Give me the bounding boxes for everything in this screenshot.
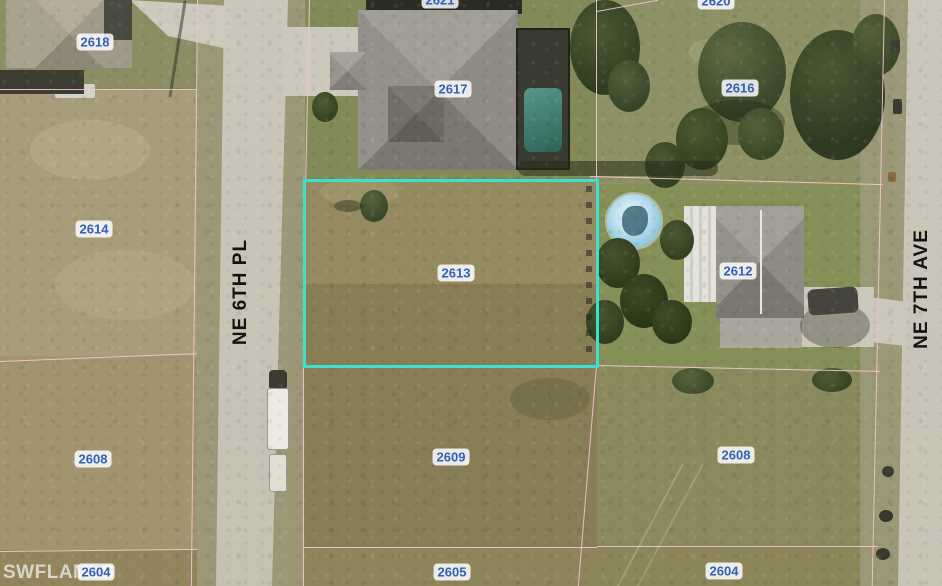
parcel-label-2604-right: 2604 [706, 563, 743, 580]
parcel-label-2604-left: 2604 [78, 564, 115, 581]
sand-patch [55, 250, 195, 320]
parcel-label-2608-right: 2608 [718, 447, 755, 464]
parcel-label-2617: 2617 [435, 81, 472, 98]
house-2618-lanai [0, 70, 84, 94]
roadside-object [888, 172, 896, 182]
parcel-label-2609: 2609 [433, 449, 470, 466]
parcel-label-2621: 2621 [422, 0, 459, 9]
roadside-object [893, 99, 902, 114]
parcel-line [597, 546, 878, 547]
dark-grass-patch [510, 378, 590, 420]
roadside-bush [876, 548, 890, 560]
bush [812, 368, 852, 392]
bush [672, 368, 714, 394]
parcel-line [596, 0, 597, 181]
parcel-line [303, 547, 597, 548]
palm-shadow-on-pool [622, 206, 648, 236]
roadside-bush [882, 466, 894, 477]
rv-on-road [265, 370, 291, 492]
palm [660, 220, 694, 260]
parcel-label-2608-left: 2608 [75, 451, 112, 468]
street-label-ne-7th-ave: NE 7TH AVE [911, 229, 933, 349]
parcel-label-2612: 2612 [720, 263, 757, 280]
sand-patch [30, 120, 150, 180]
parcel-label-2620: 2620 [698, 0, 735, 10]
parcel-label-2618: 2618 [77, 34, 114, 51]
pool-2617 [524, 88, 562, 152]
bush [312, 92, 338, 122]
car-2612 [807, 286, 859, 315]
rv-trailer [269, 454, 287, 492]
rv-body [267, 388, 289, 450]
roof-ridge [760, 210, 762, 314]
hedge-row [518, 161, 718, 176]
aerial-map[interactable]: SWFLAMLS NE 6TH PL NE 7TH AVE 2618 2621 … [0, 0, 942, 586]
parcel-line [303, 365, 304, 586]
parcel-line [0, 89, 197, 90]
parcel-label-2616: 2616 [722, 80, 759, 97]
house-2617-shed-roof [330, 52, 365, 90]
tree [608, 60, 650, 112]
rv-front-shadow [269, 370, 287, 390]
parcel-label-2614: 2614 [76, 221, 113, 238]
parcel-label-2613: 2613 [438, 265, 475, 282]
palm [652, 300, 692, 344]
roadside-object [891, 40, 900, 53]
street-label-ne-6th-pl: NE 6TH PL [230, 239, 252, 345]
roadside-bush [879, 510, 893, 522]
parcel-label-2605: 2605 [434, 564, 471, 581]
house-2612-lanai-roof [684, 206, 720, 302]
house-2612-extension-roof [720, 318, 802, 348]
palm [738, 108, 784, 160]
